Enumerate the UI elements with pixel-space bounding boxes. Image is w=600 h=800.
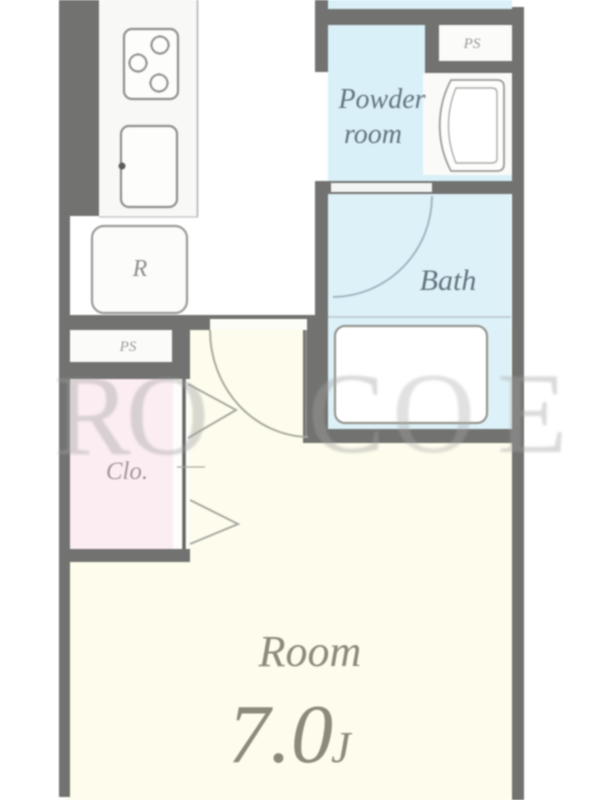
svg-text:Bath: Bath	[420, 264, 477, 297]
svg-text:Powder: Powder	[337, 84, 425, 115]
svg-text:room: room	[344, 119, 402, 150]
svg-text:C: C	[308, 350, 385, 477]
svg-text:O: O	[126, 352, 209, 479]
svg-text:R: R	[132, 256, 148, 282]
svg-text:J: J	[331, 723, 353, 772]
svg-text:R: R	[54, 352, 131, 479]
svg-text:O: O	[392, 350, 475, 477]
svg-text:PS: PS	[463, 36, 481, 52]
svg-text:E: E	[497, 350, 567, 477]
svg-text:7.0: 7.0	[228, 688, 333, 781]
svg-text:Room: Room	[258, 627, 362, 676]
